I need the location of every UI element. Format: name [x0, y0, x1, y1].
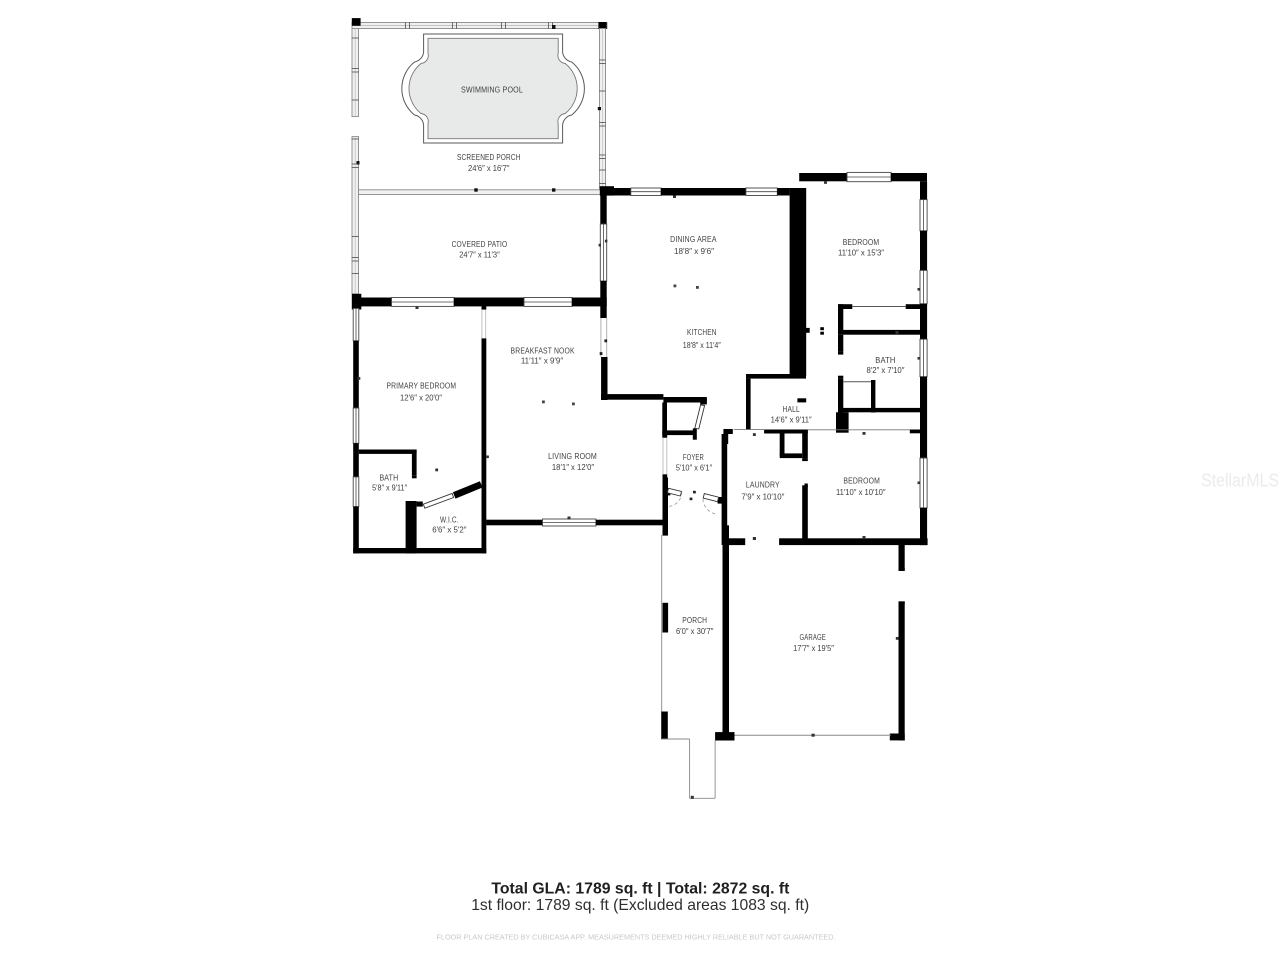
svg-text:DINING AREA: DINING AREA — [670, 234, 717, 244]
svg-text:11′10″ x 15′3″: 11′10″ x 15′3″ — [838, 249, 884, 258]
svg-text:6′6″ x 5′2″: 6′6″ x 5′2″ — [432, 526, 467, 535]
svg-text:BEDROOM: BEDROOM — [843, 476, 880, 486]
svg-text:LAUNDRY: LAUNDRY — [746, 479, 780, 489]
svg-text:PRIMARY BEDROOM: PRIMARY BEDROOM — [386, 381, 456, 391]
svg-text:KITCHEN: KITCHEN — [687, 327, 717, 337]
svg-text:SWIMMING POOL: SWIMMING POOL — [461, 85, 523, 95]
svg-text:FOYER: FOYER — [683, 452, 704, 462]
svg-text:17′7″ x 19′5″: 17′7″ x 19′5″ — [793, 644, 834, 653]
svg-text:6′0″ x 30′7″: 6′0″ x 30′7″ — [676, 627, 714, 636]
svg-text:BREAKFAST NOOK: BREAKFAST NOOK — [511, 345, 575, 355]
svg-text:11′10″ x 10′10″: 11′10″ x 10′10″ — [836, 488, 886, 497]
svg-text:14′6″ x 9′11″: 14′6″ x 9′11″ — [771, 416, 812, 425]
svg-text:BATH: BATH — [379, 472, 398, 482]
svg-text:11′11″ x 9′9″: 11′11″ x 9′9″ — [521, 357, 563, 366]
svg-text:W.I.C.: W.I.C. — [440, 515, 459, 525]
svg-text:Total GLA: 1789 sq. ft | Total: Total GLA: 1789 sq. ft | Total: 2872 sq.… — [491, 881, 790, 898]
svg-text:18′8″ x 11′4″: 18′8″ x 11′4″ — [683, 341, 721, 350]
svg-text:HALL: HALL — [783, 404, 800, 414]
svg-text:8′2″ x 7′10″: 8′2″ x 7′10″ — [867, 366, 905, 375]
svg-text:18′1″ x 12′0″: 18′1″ x 12′0″ — [552, 463, 594, 472]
svg-text:SCREENED PORCH: SCREENED PORCH — [457, 152, 521, 162]
svg-text:24′7″ x 11′3″: 24′7″ x 11′3″ — [459, 251, 500, 260]
svg-text:7′9″ x 10′10″: 7′9″ x 10′10″ — [741, 493, 784, 502]
svg-text:18′8″ x 9′6″: 18′8″ x 9′6″ — [674, 247, 714, 256]
svg-text:1st floor: 1789 sq. ft (Exclud: 1st floor: 1789 sq. ft (Excluded areas 1… — [471, 897, 809, 914]
svg-text:5′10″ x 6′1″: 5′10″ x 6′1″ — [676, 463, 712, 472]
svg-text:BATH: BATH — [875, 355, 895, 365]
svg-text:StellarMLS: StellarMLS — [1201, 471, 1279, 491]
svg-text:GARAGE: GARAGE — [799, 632, 826, 642]
svg-text:LIVING ROOM: LIVING ROOM — [548, 451, 597, 461]
svg-text:5′8″ x 9′11″: 5′8″ x 9′11″ — [372, 484, 407, 493]
svg-text:BEDROOM: BEDROOM — [843, 237, 880, 247]
svg-text:12′6″ x 20′0″: 12′6″ x 20′0″ — [400, 393, 442, 402]
svg-text:PORCH: PORCH — [682, 615, 707, 625]
svg-text:FLOOR PLAN CREATED BY CUBICASA: FLOOR PLAN CREATED BY CUBICASA APP. MEAS… — [437, 932, 836, 941]
svg-text:COVERED PATIO: COVERED PATIO — [452, 239, 508, 249]
svg-text:24′6″ x 16′7″: 24′6″ x 16′7″ — [468, 164, 510, 173]
